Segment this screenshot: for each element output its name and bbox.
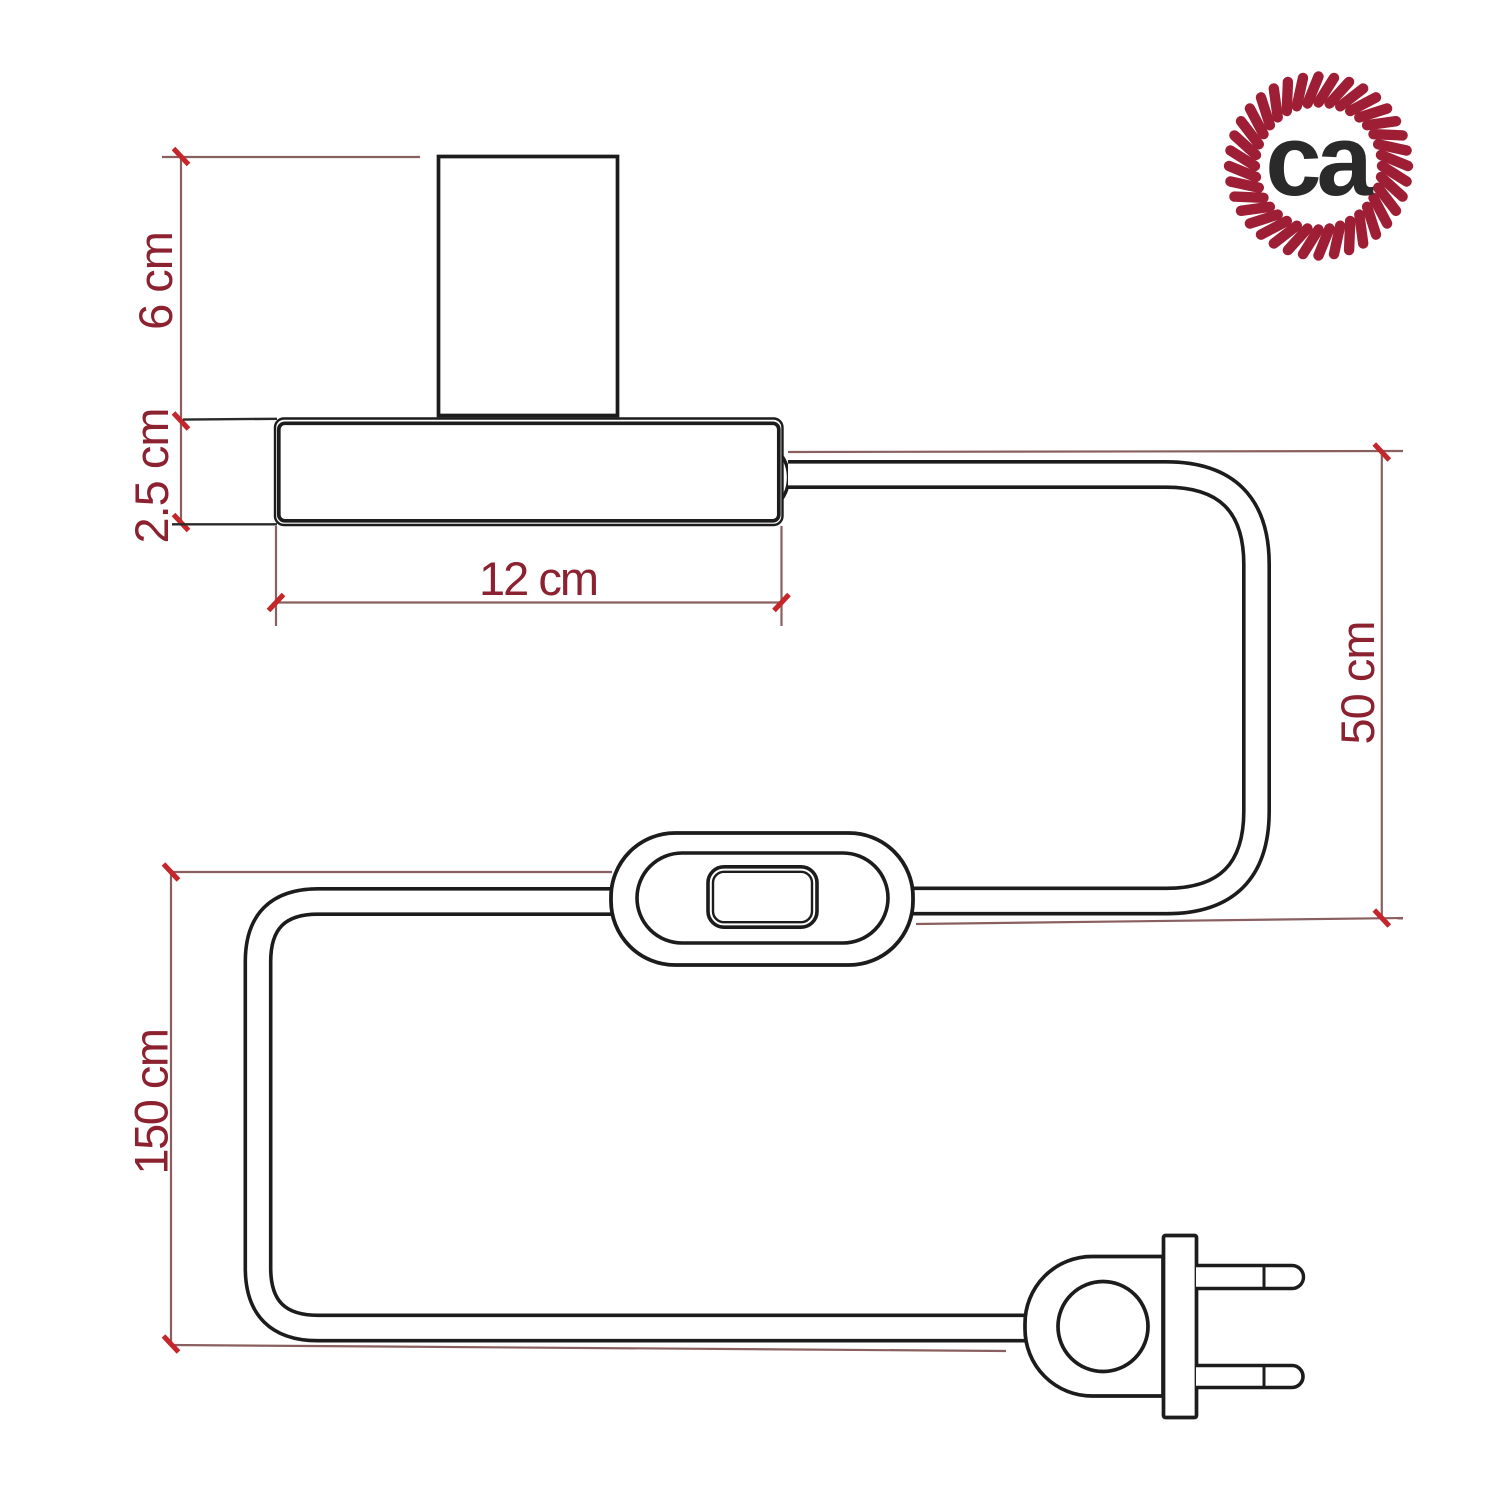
svg-text:2.5 cm: 2.5 cm <box>125 408 178 543</box>
svg-text:6 cm: 6 cm <box>129 232 182 330</box>
svg-text:50 cm: 50 cm <box>1331 622 1384 745</box>
svg-text:ca: ca <box>1265 105 1373 217</box>
svg-text:150 cm: 150 cm <box>125 1029 178 1174</box>
svg-text:12 cm: 12 cm <box>479 552 597 605</box>
